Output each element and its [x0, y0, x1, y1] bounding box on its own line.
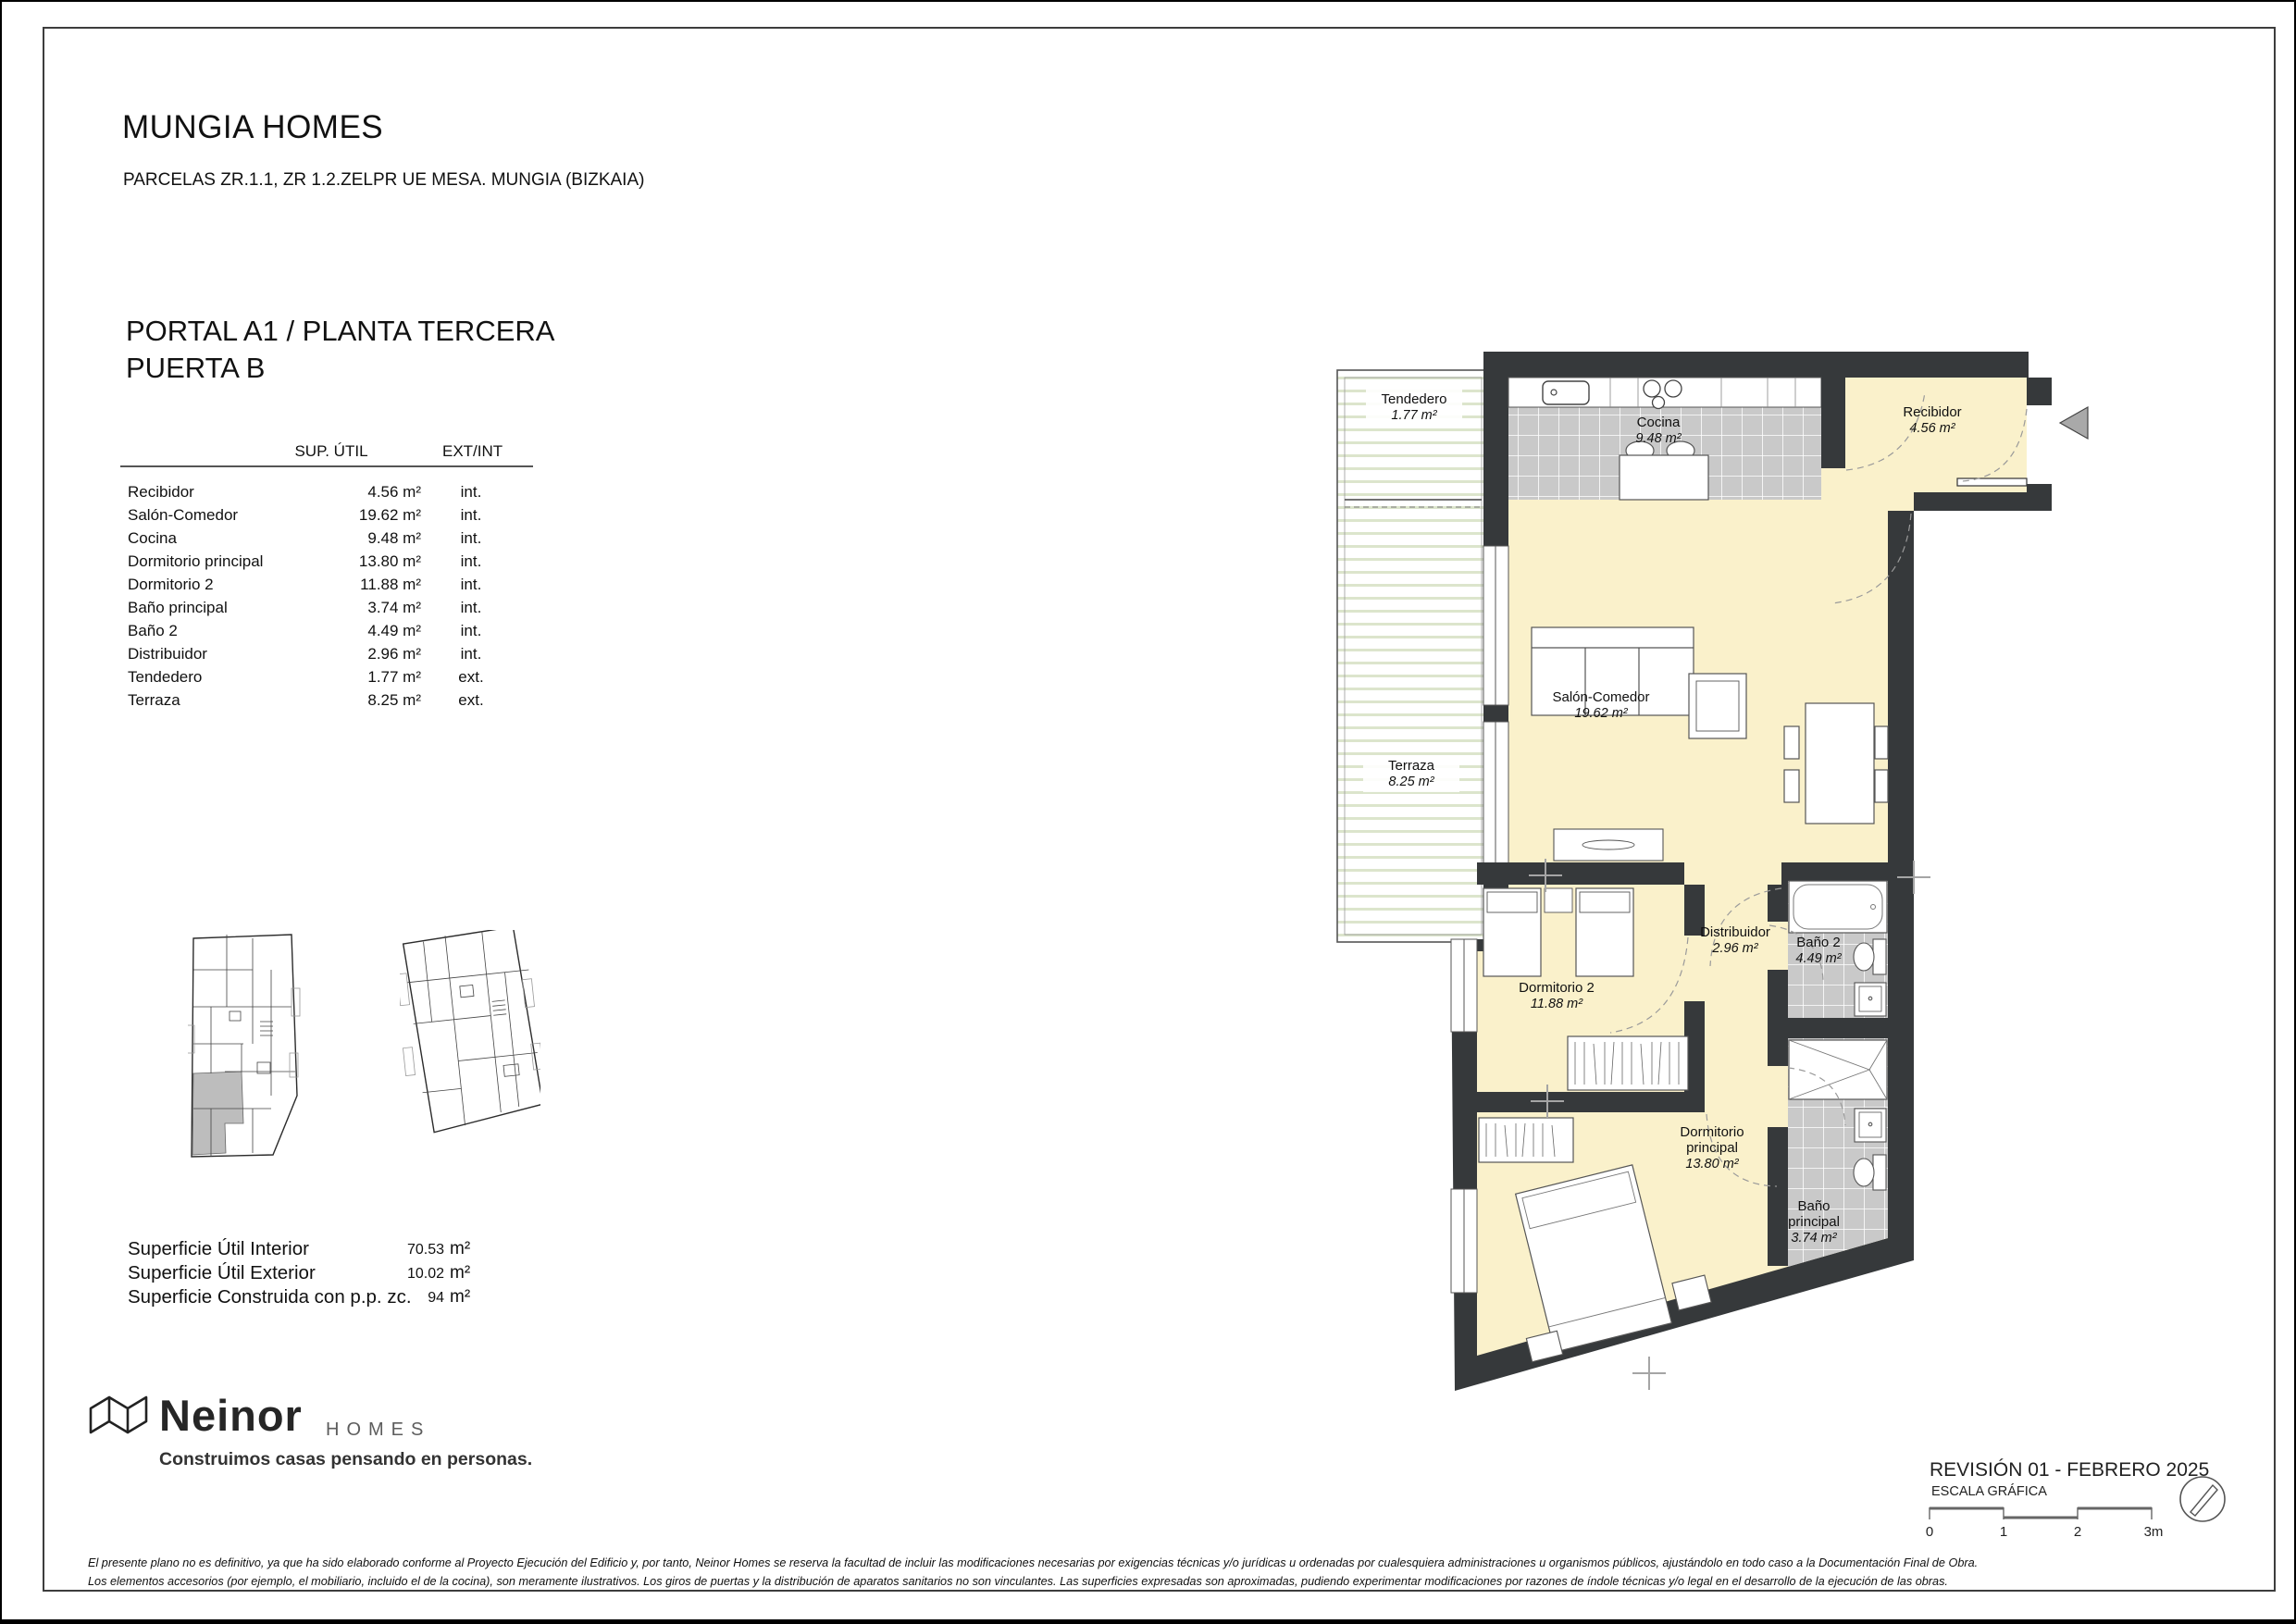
key-plan-right-icon — [400, 930, 540, 1135]
summary-value: 94 — [333, 1290, 444, 1307]
room-area-label: 1.77 m² — [1391, 408, 1437, 423]
room-area-label: 3.74 m² — [1791, 1231, 1837, 1246]
wardrobe — [1568, 1036, 1688, 1090]
wardrobe — [1479, 1118, 1573, 1162]
logo-brand-text: Neinor — [159, 1390, 303, 1441]
room-ext-int: int. — [442, 576, 500, 594]
summary-value: 70.53 — [333, 1242, 444, 1258]
project-subtitle: PARCELAS ZR.1.1, ZR 1.2.ZELPR UE MESA. M… — [123, 170, 644, 191]
room-name: Terraza — [128, 691, 304, 710]
room-area-label: 4.49 m² — [1795, 951, 1842, 966]
column-header-sup-util: SUP. ÚTIL — [276, 442, 387, 461]
scale-tick: 0 — [1926, 1524, 1933, 1540]
room-ext-int: int. — [442, 645, 500, 663]
north-arrow-icon — [2180, 1477, 2225, 1521]
room-label: Cocina — [1637, 415, 1681, 430]
table-row: Dormitorio principal13.80 m²int. — [74, 552, 537, 576]
room-label: Recibidor — [1903, 404, 1961, 420]
room-ext-int: ext. — [442, 691, 500, 710]
table-row: Terraza8.25 m²ext. — [74, 691, 537, 714]
washbasin-icon — [1855, 1109, 1886, 1142]
table-rule — [120, 465, 533, 467]
room-area-label: 2.96 m² — [1711, 941, 1758, 956]
scale-label: ESCALA GRÁFICA — [1931, 1483, 2047, 1499]
project-title: MUNGIA HOMES — [122, 109, 383, 146]
scale-bar — [1930, 1507, 2152, 1519]
room-ext-int: int. — [442, 599, 500, 617]
washbasin-icon — [1855, 983, 1886, 1016]
disclaimer-line1: El presente plano no es definitivo, ya q… — [88, 1555, 2235, 1573]
key-plan-left-icon — [188, 933, 308, 1159]
room-area-label: 11.88 m² — [1531, 997, 1583, 1011]
room-area: 2.96 m² — [310, 645, 421, 663]
room-area: 1.77 m² — [310, 668, 421, 687]
scale-tick: 1 — [2000, 1524, 2007, 1540]
room-name: Tendedero — [128, 668, 304, 687]
room-area: 3.74 m² — [310, 599, 421, 617]
wall — [1914, 492, 2027, 511]
room-area-label: 13.80 m² — [1685, 1157, 1739, 1172]
room-area: 4.56 m² — [310, 483, 421, 502]
room-ext-int: ext. — [442, 668, 500, 687]
room-area: 4.49 m² — [310, 622, 421, 640]
logo-tagline: Construimos casas pensando en personas. — [159, 1449, 532, 1470]
room-area: 13.80 m² — [310, 552, 421, 571]
room-area: 9.48 m² — [310, 529, 421, 548]
room-name: Baño 2 — [128, 622, 304, 640]
column-header-ext-int: EXT/INT — [442, 442, 500, 461]
room-ext-int: int. — [442, 506, 500, 525]
scale-tick: 3m — [2144, 1524, 2164, 1540]
table-row: Dormitorio 211.88 m²int. — [74, 576, 537, 599]
room-name: Distribuidor — [128, 645, 304, 663]
disclaimer: El presente plano no es definitivo, ya q… — [88, 1555, 2235, 1591]
armchair — [1689, 674, 1746, 738]
summary-value: 10.02 — [333, 1266, 444, 1283]
table-row: Distribuidor2.96 m²int. — [74, 645, 537, 668]
room-label: Dormitorio — [1680, 1124, 1744, 1140]
summary-label: Superficie Útil Exterior — [128, 1262, 316, 1284]
table-row: Tendedero1.77 m²ext. — [74, 668, 537, 691]
room-label: Baño — [1797, 1198, 1830, 1214]
scale-tick: 2 — [2074, 1524, 2081, 1540]
room-label: Salón-Comedor — [1552, 689, 1649, 705]
summary-unit: m² — [450, 1263, 470, 1283]
room-ext-int: int. — [442, 552, 500, 571]
room-name: Dormitorio principal — [128, 552, 304, 571]
room-name: Baño principal — [128, 599, 304, 617]
bathtub-icon — [1789, 881, 1887, 933]
room-area: 8.25 m² — [310, 691, 421, 710]
room-label: Dormitorio 2 — [1519, 980, 1595, 996]
room-name: Salón-Comedor — [128, 506, 304, 525]
room-area: 11.88 m² — [310, 576, 421, 594]
floor-plan: Tendedero 1.77 m² Terraza 8.25 m² Cocina… — [1314, 333, 2166, 1444]
entry-arrow-icon — [2060, 407, 2088, 439]
sideboard — [1554, 829, 1663, 861]
plan-sheet: MUNGIA HOMES PARCELAS ZR.1.1, ZR 1.2.ZEL… — [0, 0, 2296, 1624]
table-row: Baño principal3.74 m²int. — [74, 599, 537, 622]
sink-icon — [1543, 381, 1589, 404]
room-name: Cocina — [128, 529, 304, 548]
room-area-label: 4.56 m² — [1909, 421, 1955, 436]
room-area-label: 8.25 m² — [1388, 775, 1434, 789]
room-label: Distribuidor — [1700, 924, 1770, 940]
room-label: Tendedero — [1382, 391, 1447, 407]
logo-homes-text: HOMES — [326, 1419, 430, 1441]
room-ext-int: int. — [442, 529, 500, 548]
balcony-terraza — [1337, 370, 1487, 942]
summary-label: Superficie Útil Interior — [128, 1238, 309, 1260]
room-name: Dormitorio 2 — [128, 576, 304, 594]
room-label: Baño 2 — [1796, 935, 1841, 950]
disclaimer-line2: Los elementos accesorios (por ejemplo, e… — [88, 1573, 2235, 1592]
neinor-logo-icon — [89, 1394, 148, 1445]
table-row: Baño 24.49 m²int. — [74, 622, 537, 645]
room-ext-int: int. — [442, 483, 500, 502]
room-label: Terraza — [1388, 758, 1435, 774]
room-name: Recibidor — [128, 483, 304, 502]
room-label: principal — [1686, 1140, 1738, 1156]
room-area-label: 19.62 m² — [1574, 706, 1628, 721]
summary-unit: m² — [450, 1239, 470, 1259]
revision-text: REVISIÓN 01 - FEBRERO 2025 — [1930, 1459, 2209, 1481]
table-row: Salón-Comedor19.62 m²int. — [74, 506, 537, 529]
room-area-label: 9.48 m² — [1635, 431, 1682, 446]
title-block: REVISIÓN 01 - FEBRERO 2025 ESCALA GRÁFIC… — [1920, 1455, 2244, 1561]
table-row: Cocina9.48 m²int. — [74, 529, 537, 552]
summary-unit: m² — [450, 1287, 470, 1308]
table-row: Recibidor4.56 m²int. — [74, 483, 537, 506]
shower-icon — [1789, 1040, 1887, 1099]
unit-heading: PORTAL A1 / PLANTA TERCERA PUERTA B — [126, 313, 554, 387]
room-ext-int: int. — [442, 622, 500, 640]
room-area: 19.62 m² — [310, 506, 421, 525]
surface-summary: Superficie Útil Interior70.53m² Superfic… — [74, 1238, 555, 1310]
room-label: principal — [1788, 1214, 1840, 1230]
